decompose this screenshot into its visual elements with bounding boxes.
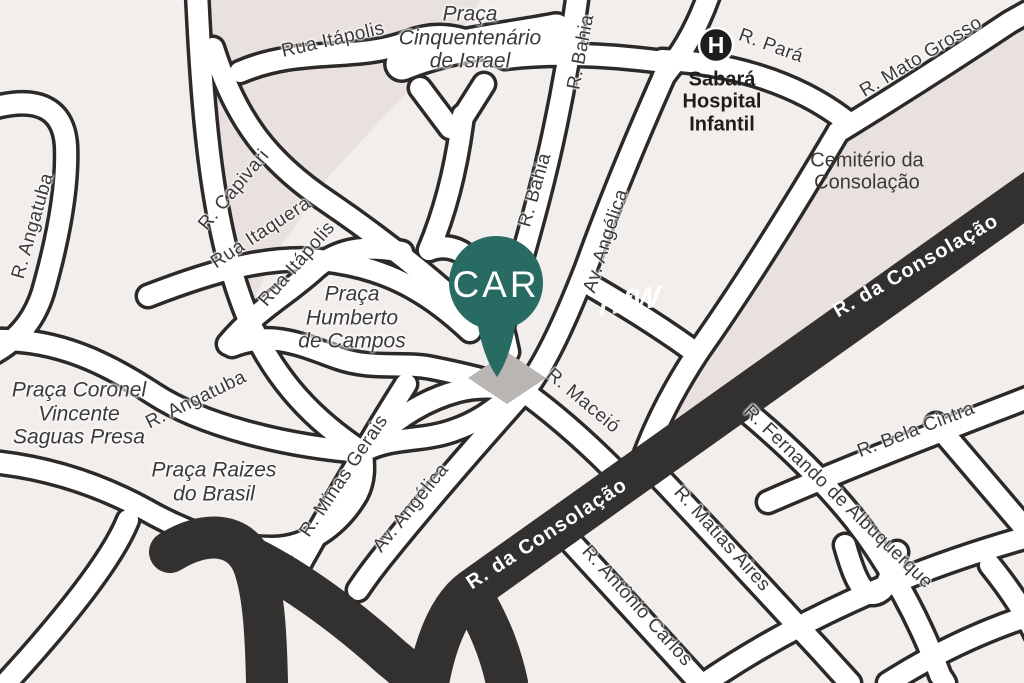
map-canvas: CAR H [0,0,1024,683]
hospital-icon-letter: H [708,32,725,58]
pin-label: CAR [452,264,539,305]
map: CAR H Rua ItápolisR. CapivariRua Itaquer… [0,0,1024,683]
hospital-marker: H [699,28,733,62]
